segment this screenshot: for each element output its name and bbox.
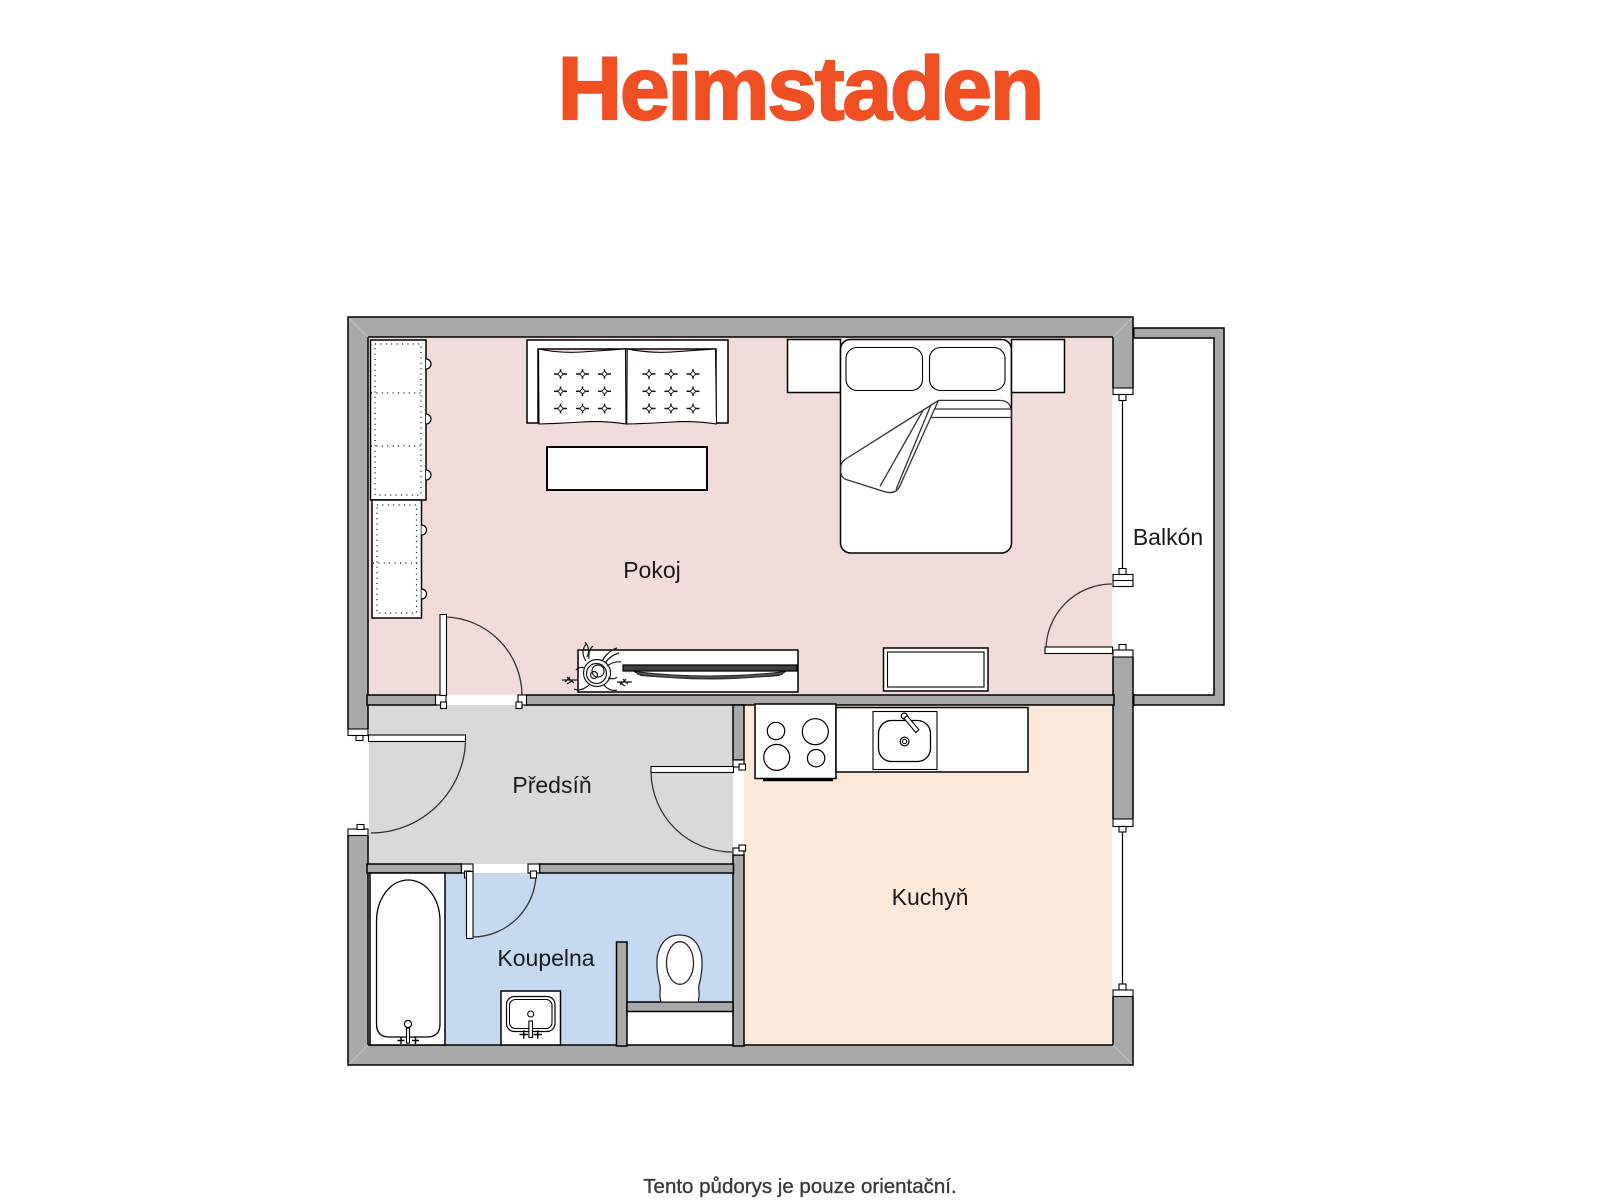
svg-text:Heimstaden: Heimstaden bbox=[558, 38, 1043, 138]
svg-text:Balkón: Balkón bbox=[1133, 524, 1203, 550]
svg-text:Tento půdorys je pouze orienta: Tento půdorys je pouze orientační. bbox=[643, 1175, 956, 1198]
svg-text:Koupelna: Koupelna bbox=[497, 945, 594, 971]
svg-text:Pokoj: Pokoj bbox=[623, 557, 681, 583]
svg-text:Kuchyň: Kuchyň bbox=[892, 884, 969, 910]
svg-text:Předsíň: Předsíň bbox=[512, 772, 591, 798]
